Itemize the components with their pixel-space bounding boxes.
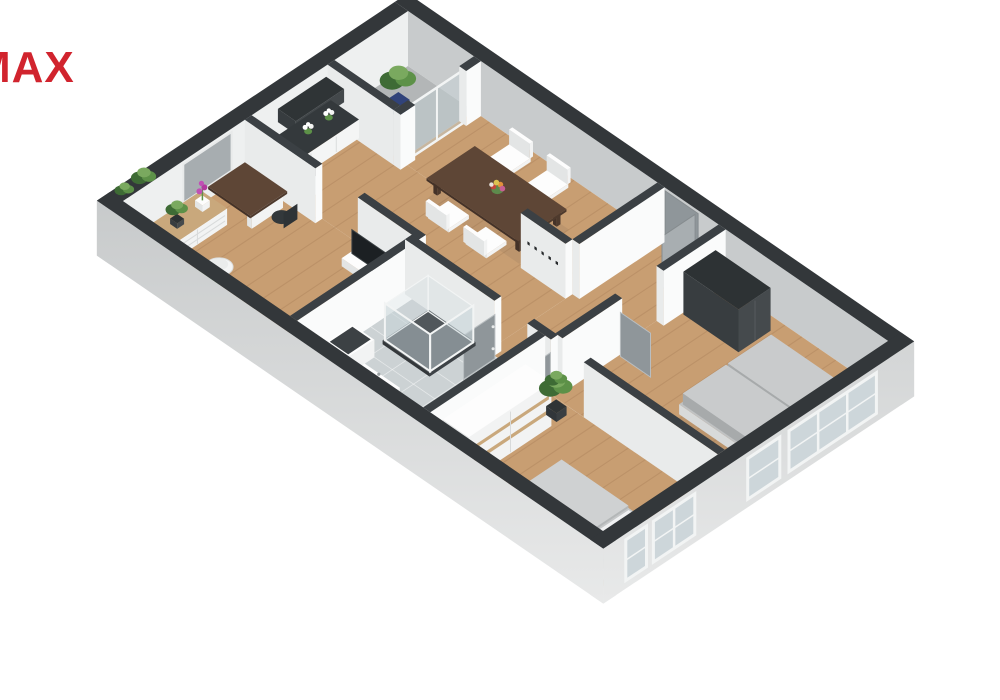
floor-plan-page: MAX — [0, 0, 1000, 700]
floor-plan-3d-render — [0, 0, 1000, 700]
remax-logo: MAX — [0, 46, 75, 90]
remax-logo-text: MAX — [0, 43, 75, 92]
